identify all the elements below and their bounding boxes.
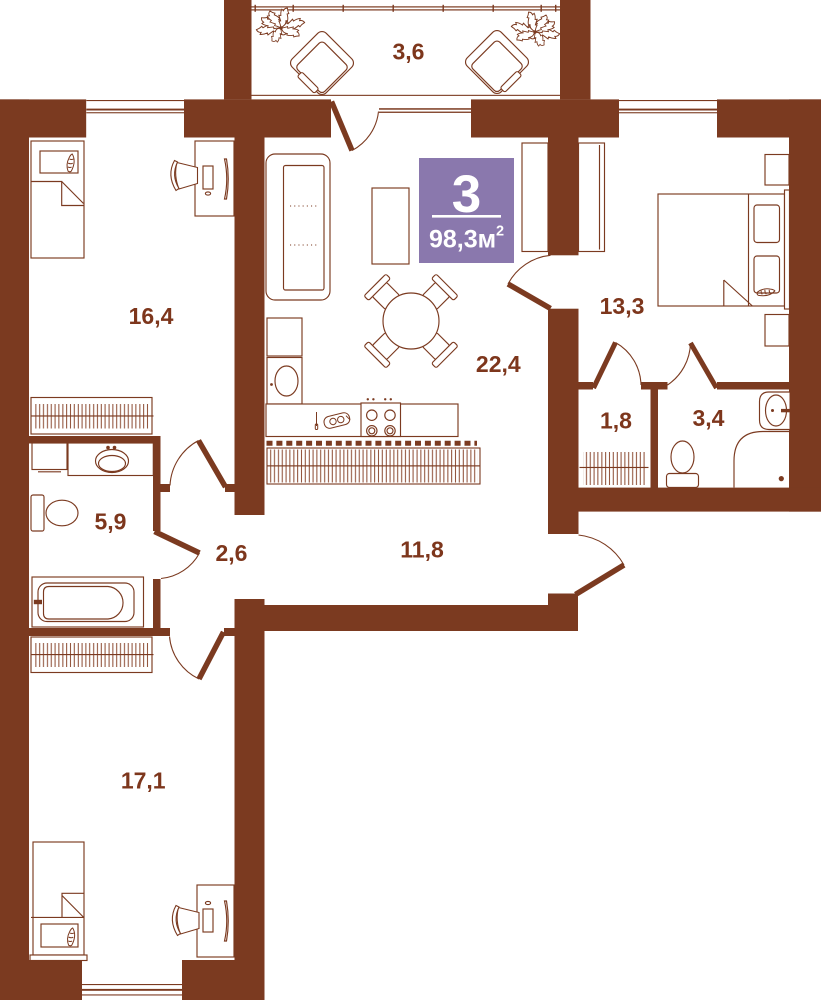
svg-text:5,9: 5,9 [95, 509, 127, 535]
svg-text:3,6: 3,6 [393, 38, 425, 64]
svg-text:11,8: 11,8 [400, 537, 444, 563]
svg-text:98,3м: 98,3м [429, 226, 496, 254]
svg-text:2: 2 [496, 224, 504, 240]
svg-text:1,8: 1,8 [600, 408, 632, 434]
svg-text:17,1: 17,1 [121, 768, 166, 794]
svg-text:16,4: 16,4 [129, 303, 174, 329]
svg-text:3,4: 3,4 [693, 405, 725, 431]
svg-text:13,3: 13,3 [600, 293, 645, 319]
svg-text:2,6: 2,6 [216, 540, 248, 566]
svg-text:22,4: 22,4 [476, 351, 521, 377]
